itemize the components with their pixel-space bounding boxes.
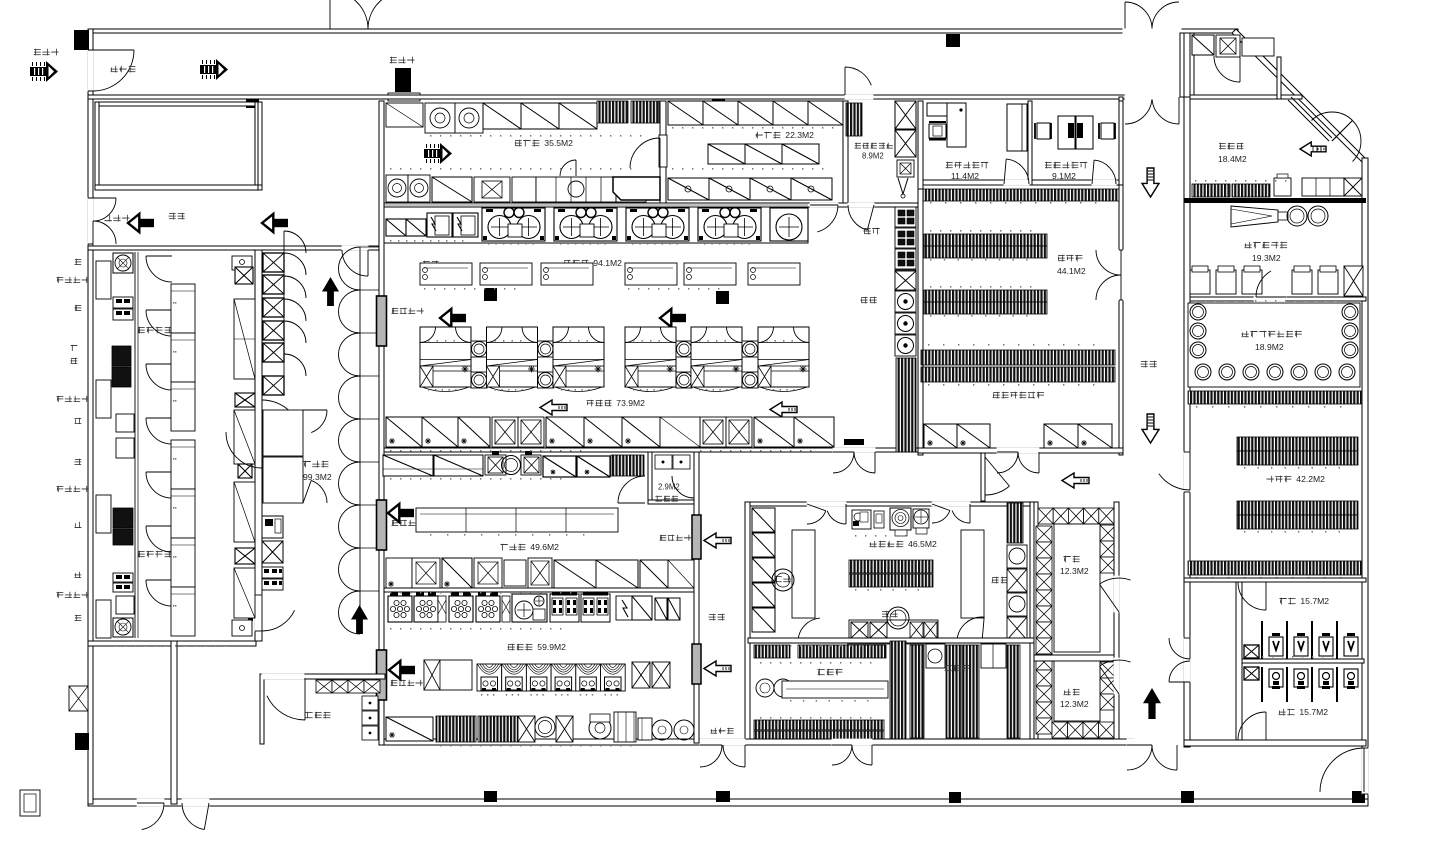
svg-text:35.5M2: 35.5M2 — [544, 138, 573, 148]
svg-text:2.9M2: 2.9M2 — [658, 483, 680, 492]
svg-text:42.2M2: 42.2M2 — [1296, 474, 1325, 484]
svg-text:44.1M2: 44.1M2 — [1057, 266, 1086, 276]
svg-text:9.1M2: 9.1M2 — [1052, 171, 1076, 181]
svg-text:18.9M2: 18.9M2 — [1255, 342, 1284, 352]
svg-text:99.3M2: 99.3M2 — [303, 472, 332, 482]
svg-text:15.7M2: 15.7M2 — [1299, 707, 1328, 717]
svg-text:8.9M2: 8.9M2 — [862, 152, 884, 161]
svg-text:18.4M2: 18.4M2 — [1218, 154, 1247, 164]
svg-text:12.3M2: 12.3M2 — [1060, 566, 1089, 576]
svg-text:12.3M2: 12.3M2 — [1060, 699, 1089, 709]
svg-text:46.5M2: 46.5M2 — [908, 539, 937, 549]
svg-text:22.3M2: 22.3M2 — [785, 130, 814, 140]
svg-text:49.6M2: 49.6M2 — [530, 542, 559, 552]
svg-text:94.1M2: 94.1M2 — [593, 258, 622, 268]
svg-text:11.4M2: 11.4M2 — [951, 171, 979, 181]
svg-text:19.3M2: 19.3M2 — [1252, 253, 1281, 263]
svg-text:73.9M2: 73.9M2 — [616, 398, 645, 408]
svg-text:15.7M2: 15.7M2 — [1300, 596, 1329, 606]
svg-text:59.9M2: 59.9M2 — [537, 642, 566, 652]
